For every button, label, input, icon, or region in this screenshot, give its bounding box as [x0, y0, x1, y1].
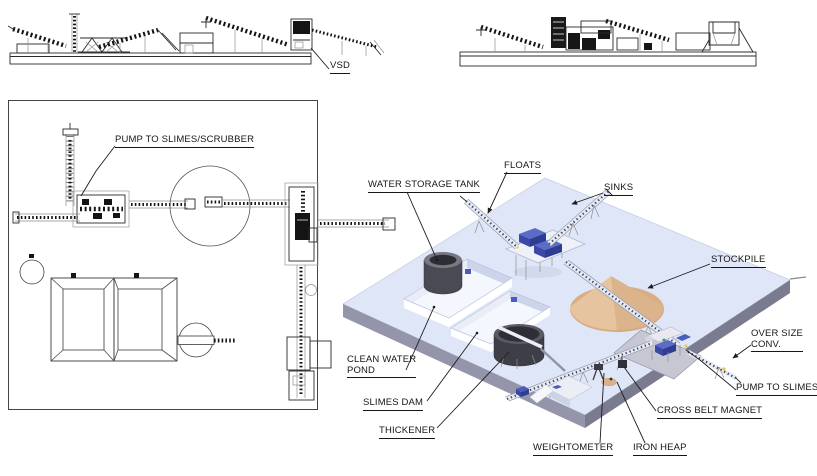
pump-scrubber-leader-line: [81, 146, 115, 196]
label-slimes-dam: SLIMES DAM: [363, 398, 423, 411]
label-floats: FLOATS: [504, 161, 541, 174]
label-cross-belt-magnet: CROSS BELT MAGNET: [657, 406, 762, 419]
plan-thickener: [178, 323, 236, 357]
elevation-view-left: [8, 14, 384, 69]
small-pump: [511, 297, 517, 302]
vsd-leader-line: [311, 48, 329, 69]
label-pump-to-slimes: PUMP TO SLIMES: [736, 383, 817, 396]
small-pump: [465, 269, 471, 274]
elevation-view-right: [460, 17, 756, 66]
label-clean-water-pond: CLEAN WATER POND: [347, 355, 416, 378]
plan-ponds: [51, 273, 177, 361]
label-pump-to-slimes-scrubber: PUMP TO SLIMES/SCRUBBER: [115, 135, 254, 148]
label-iron-heap: IRON HEAP: [633, 443, 687, 456]
label-stockpile: STOCKPILE: [711, 255, 766, 268]
label-vsd: VSD: [330, 61, 350, 74]
label-weightometer: WEIGHTOMETER: [533, 443, 613, 456]
edge-tick: [790, 277, 806, 279]
label-sinks: SINKS: [604, 183, 633, 196]
label-over-size-conv: OVER SIZE CONV.: [751, 329, 803, 352]
process-plant-diagram: VSD PUMP TO SLIMES/SCRUBBER WATER STORAG…: [0, 0, 817, 476]
water-storage-tank: [424, 252, 462, 294]
label-thickener: THICKENER: [379, 426, 435, 439]
label-water-storage-tank: WATER STORAGE TANK: [368, 180, 480, 193]
